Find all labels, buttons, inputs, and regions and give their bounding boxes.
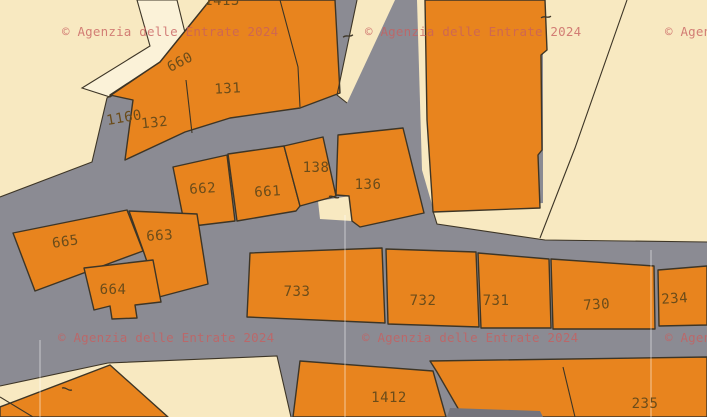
cadastral-map-viewport: 1316626611381366656636647337327317302341… [0, 0, 707, 417]
parcel-label: 131 [214, 80, 242, 97]
parcel-label: 664 [100, 282, 127, 298]
parcel-label: 661 [254, 183, 282, 201]
parcel-label: 731 [483, 293, 510, 309]
watermark: © Agenzia delle Entrate 2024 [362, 330, 578, 345]
watermark: © Agenzia delle Entrate 2024 [665, 24, 707, 39]
parcel-235[interactable] [430, 357, 707, 417]
parcel-733[interactable] [247, 248, 385, 323]
parcel-label: 1412 [371, 390, 407, 406]
parcel-label: 1413 [204, 0, 240, 9]
parcel-label: 662 [189, 180, 217, 198]
parcel-730[interactable] [551, 259, 655, 329]
watermark: © Agenzia delle Entrate 2024 [62, 24, 278, 39]
parcel-label: 733 [284, 284, 311, 300]
parcel-731[interactable] [478, 253, 551, 328]
watermark: © Agenzia delle Entrate 2024 [365, 24, 581, 39]
parcel-label: 663 [146, 227, 174, 245]
parcel-label: 138 [303, 160, 330, 176]
parcel-732[interactable] [386, 249, 479, 327]
parcel-label: 234 [661, 290, 689, 308]
parcel-label: 730 [583, 296, 611, 314]
parcel-label: 136 [355, 177, 382, 193]
cadastral-map: 1316626611381366656636647337327317302341… [0, 0, 707, 417]
parcel-label: 132 [140, 114, 168, 133]
parcel-label: 732 [410, 293, 437, 309]
parcel-label: 235 [632, 396, 659, 412]
watermark: © Agenzia delle Entrate 2024 [58, 330, 274, 345]
watermark: © Agenzia delle Entrate 2024 [665, 330, 707, 345]
